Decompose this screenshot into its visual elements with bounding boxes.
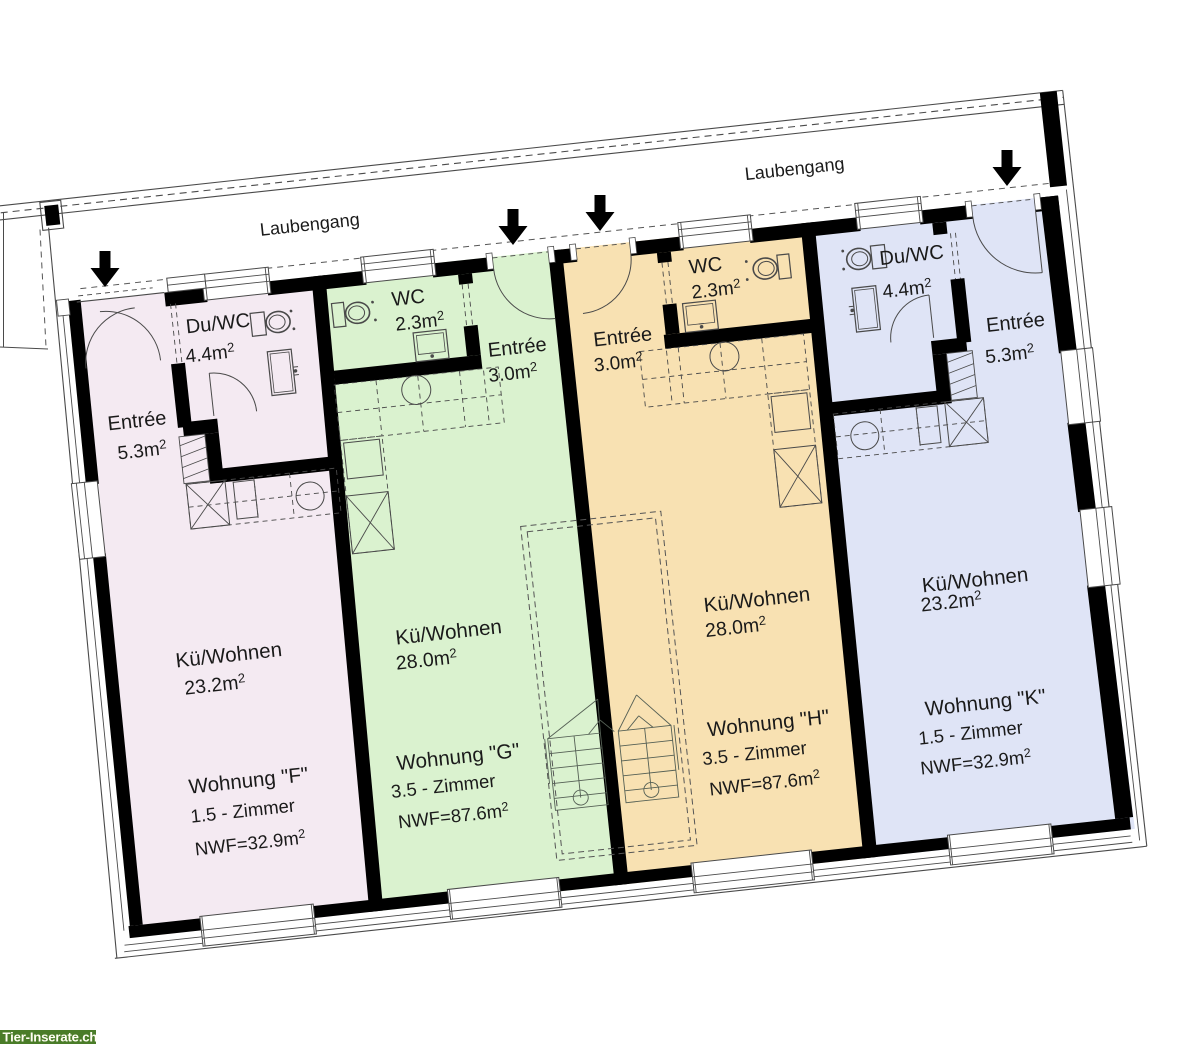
- svg-text:Tier-Inserate.ch: Tier-Inserate.ch: [3, 1030, 98, 1045]
- svg-text:WC: WC: [688, 253, 724, 278]
- svg-text:WC: WC: [391, 286, 427, 311]
